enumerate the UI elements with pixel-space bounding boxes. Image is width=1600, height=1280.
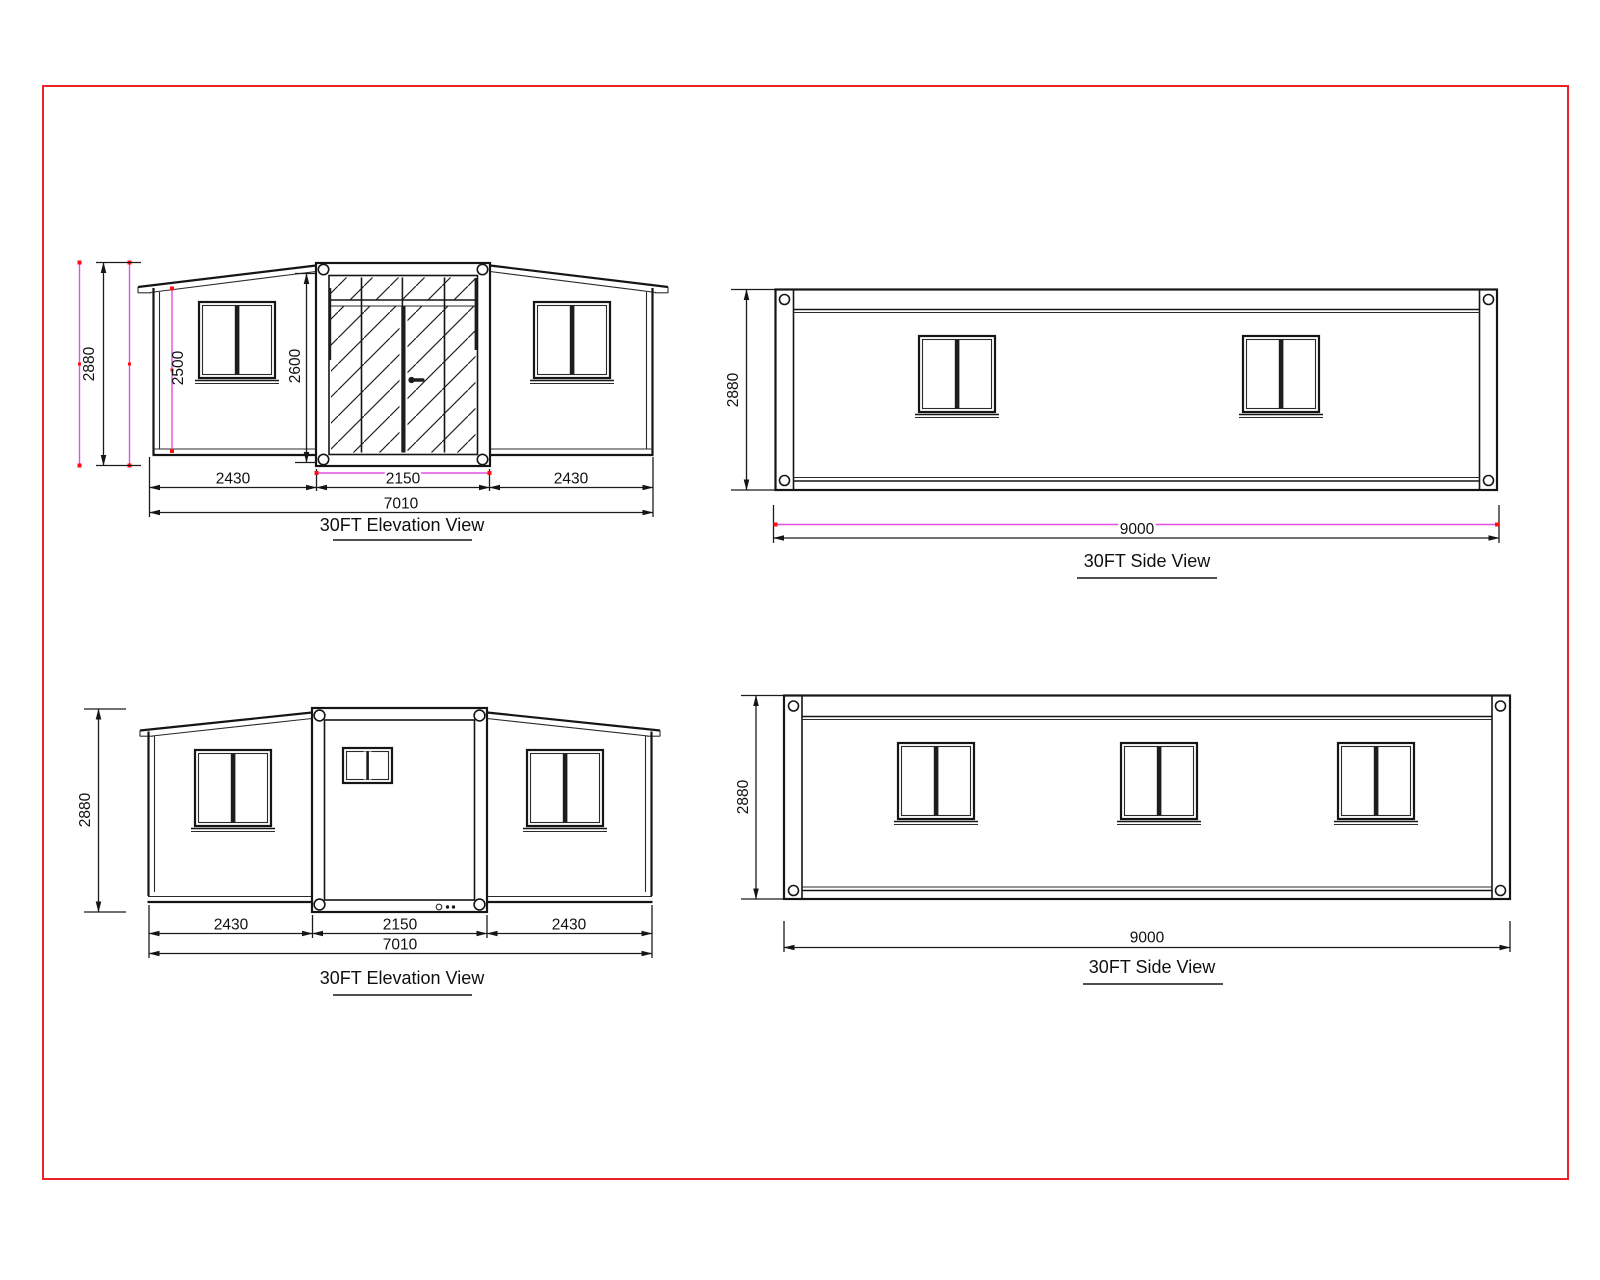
dim-overall-height-text: 2880 xyxy=(81,346,98,381)
right-expandable-wing xyxy=(487,713,660,903)
side-window-3 xyxy=(1334,743,1418,825)
left-wing-window xyxy=(191,750,275,832)
dim-center-width-text: 2150 xyxy=(383,917,418,934)
sheet-border xyxy=(43,86,1568,1179)
drawing-sheet: 2880 2500 xyxy=(0,0,1600,1280)
bottom-side-view-drawing: 2880 9000 30FT xyxy=(735,696,1510,985)
technical-drawing-canvas: 2880 2500 xyxy=(0,0,1600,1280)
corner-fitting-icons xyxy=(780,295,1494,486)
dim-overall-height: 2880 xyxy=(77,709,126,912)
corner-fitting-icons xyxy=(314,710,485,910)
view-title: 30FT Side View xyxy=(1084,551,1211,571)
dim-center-width-text: 2150 xyxy=(386,471,421,488)
dim-length: 9000 xyxy=(774,505,1500,543)
container-body xyxy=(776,290,1498,491)
small-rear-window xyxy=(343,748,392,783)
bottom-side-view-label: 30FT Side View xyxy=(1083,957,1223,984)
corner-fitting-icons xyxy=(789,701,1506,896)
rear-elevation-view-label: 30FT Elevation View xyxy=(320,968,485,995)
right-wing-window xyxy=(530,302,614,384)
front-elevation-drawing: 2880 2500 xyxy=(78,261,669,541)
dim-overall-height-text: 2880 xyxy=(77,792,94,827)
dim-length-text: 9000 xyxy=(1130,930,1165,947)
right-wing-window xyxy=(523,750,607,832)
view-title: 30FT Elevation View xyxy=(320,968,485,988)
dim-left-width-text: 2430 xyxy=(216,471,251,488)
side-window-2 xyxy=(1239,336,1323,418)
dim-right-width-text: 2430 xyxy=(554,471,589,488)
dim-wing-height-text: 2500 xyxy=(170,350,187,385)
dim-wing-height: 2500 xyxy=(170,287,187,454)
dim-height-text: 2880 xyxy=(735,779,752,814)
dim-length: 9000 xyxy=(784,921,1510,952)
side-window-1 xyxy=(915,336,999,418)
left-expandable-wing xyxy=(140,713,312,903)
dim-length-text: 9000 xyxy=(1120,521,1155,538)
dim-height: 2880 xyxy=(735,696,786,900)
dim-right-width-text: 2430 xyxy=(552,917,587,934)
front-elevation-view-label: 30FT Elevation View xyxy=(320,515,485,540)
view-title: 30FT Elevation View xyxy=(320,515,485,535)
dim-height: 2880 xyxy=(725,290,776,491)
vent-holes-icon xyxy=(436,904,455,910)
side-window-2 xyxy=(1117,743,1201,825)
dim-door-height: 2600 xyxy=(287,274,316,463)
dim-door-height-text: 2600 xyxy=(287,348,304,383)
dim-height-text: 2880 xyxy=(725,372,742,407)
dim-left-width-text: 2430 xyxy=(214,917,249,934)
dim-overall-height: 2880 xyxy=(78,261,142,468)
center-door-module: 2600 xyxy=(287,263,490,466)
right-expandable-wing xyxy=(490,266,668,456)
container-body xyxy=(784,696,1510,900)
dim-overall-width-text: 7010 xyxy=(383,937,418,954)
view-title: 30FT Side View xyxy=(1089,957,1216,977)
center-module-rear xyxy=(312,708,487,912)
dim-overall-width-text: 7010 xyxy=(384,496,419,513)
left-wing-window xyxy=(195,302,279,384)
rear-elevation-drawing: 2880 xyxy=(77,708,660,995)
top-side-view-drawing: 2880 xyxy=(725,290,1499,579)
side-window-1 xyxy=(894,743,978,825)
top-side-view-label: 30FT Side View xyxy=(1077,551,1217,578)
